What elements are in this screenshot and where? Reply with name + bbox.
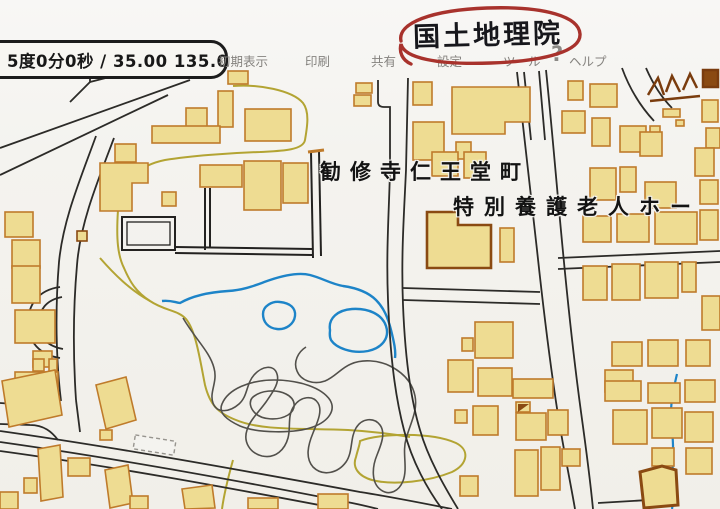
toolbar-item-tools[interactable]: ツール (503, 51, 541, 70)
handwritten-title: 国土地理院 (412, 11, 583, 55)
map-label-town: 勧修寺仁王堂町 (320, 156, 530, 186)
toolbar-item-print[interactable]: 印刷 (305, 51, 330, 70)
coordinate-readout[interactable]: 5度0分0秒 / 35.00 135.0 (0, 40, 228, 79)
toolbar-item-help[interactable]: ヘルプ (569, 51, 607, 70)
toolbar-item-initial-view[interactable]: 初期表示 (218, 51, 268, 70)
toolbar-item-share[interactable]: 共有 (371, 51, 396, 70)
coordinate-readout-text: 5度0分0秒 / 35.00 135.0 (7, 48, 228, 72)
toolbar-item-settings[interactable]: 設定 (437, 51, 462, 70)
map-label-facility: 特別養護老人ホー (453, 191, 701, 221)
